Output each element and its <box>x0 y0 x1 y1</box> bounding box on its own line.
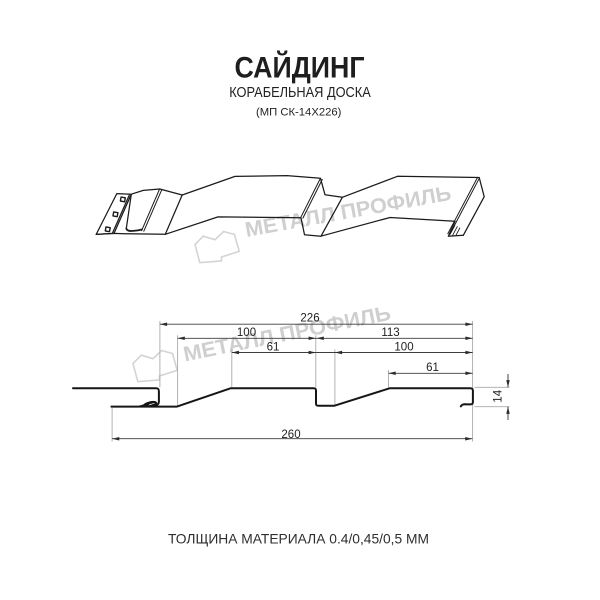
svg-text:14: 14 <box>493 389 505 402</box>
svg-text:100: 100 <box>237 327 256 339</box>
svg-text:260: 260 <box>281 429 300 441</box>
svg-text:(МП СК-14Х226): (МП СК-14Х226) <box>256 107 342 119</box>
svg-text:61: 61 <box>267 341 280 353</box>
svg-text:100: 100 <box>394 341 413 353</box>
svg-text:113: 113 <box>381 327 399 339</box>
svg-text:226: 226 <box>300 313 319 325</box>
svg-text:61: 61 <box>426 362 439 374</box>
svg-text:ТОЛЩИНА МАТЕРИАЛА 0.4/0,45/0,5: ТОЛЩИНА МАТЕРИАЛА 0.4/0,45/0,5 ММ <box>168 531 429 547</box>
svg-text:КОРАБЕЛЬНАЯ ДОСКА: КОРАБЕЛЬНАЯ ДОСКА <box>229 85 371 101</box>
svg-text:САЙДИНГ: САЙДИНГ <box>235 51 365 85</box>
